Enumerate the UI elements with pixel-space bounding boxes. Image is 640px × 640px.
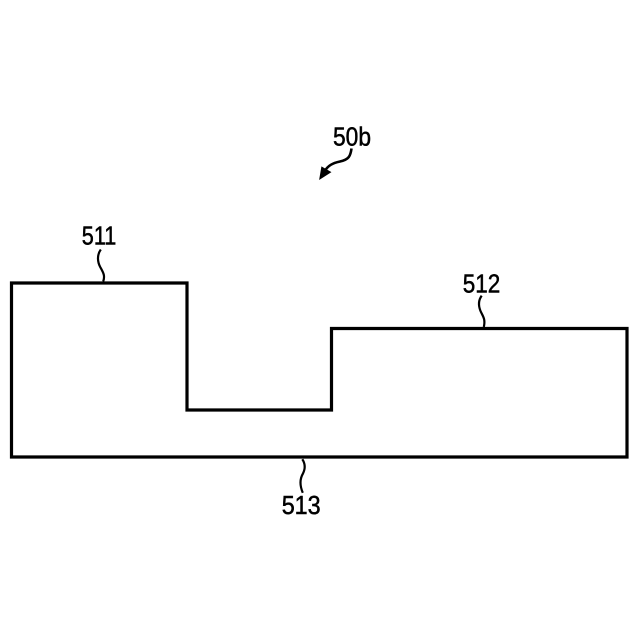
svg-text:512: 512 (463, 269, 501, 299)
svg-text:50b: 50b (333, 122, 371, 152)
svg-text:511: 511 (82, 221, 117, 251)
svg-text:513: 513 (282, 490, 321, 520)
